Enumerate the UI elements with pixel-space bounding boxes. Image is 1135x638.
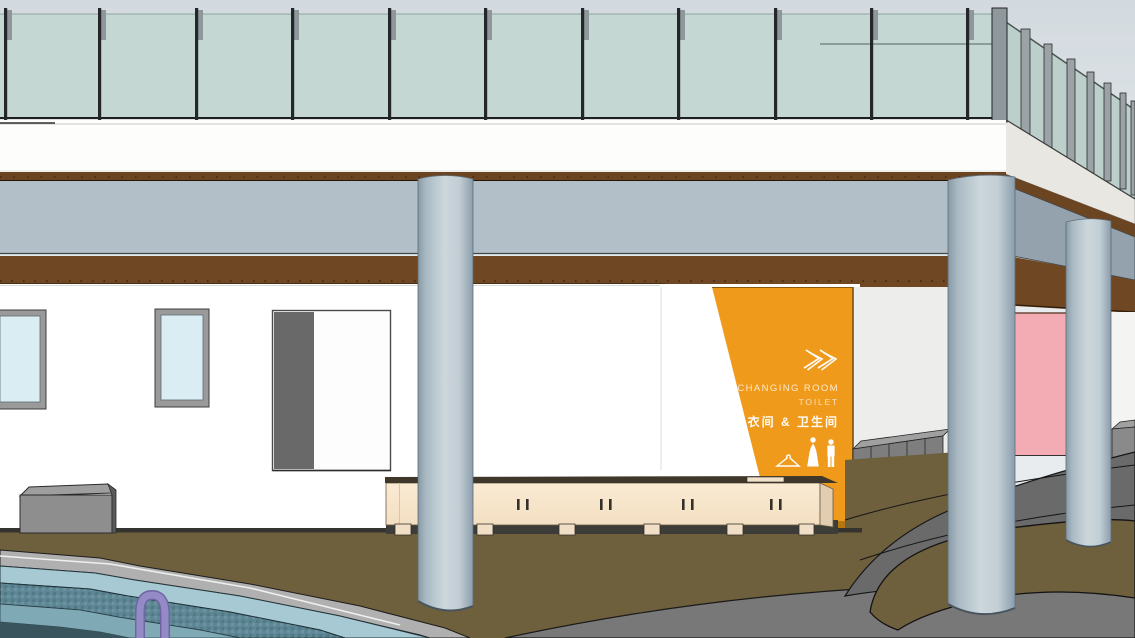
glass-railing-front [0, 8, 1007, 122]
window-middle [155, 309, 209, 407]
round-column-center [418, 176, 473, 611]
door-panel [273, 311, 392, 471]
architectural-render-viewport: CHANGING ROOM TOILET 换衣间 & 卫生间 [0, 0, 1135, 638]
planter-box [20, 484, 116, 533]
corner-post [992, 8, 1007, 122]
round-column-far [1066, 219, 1111, 547]
window-left [0, 310, 46, 409]
round-column-corner [948, 175, 1015, 614]
fascia-beam-front [0, 181, 1010, 254]
bench-end-face [820, 483, 833, 527]
bench-top-tray [747, 477, 784, 482]
parapet-front [0, 120, 1006, 172]
wood-strip-front [0, 172, 1006, 181]
pink-wall [1013, 313, 1066, 456]
scene-canvas [0, 0, 1135, 638]
